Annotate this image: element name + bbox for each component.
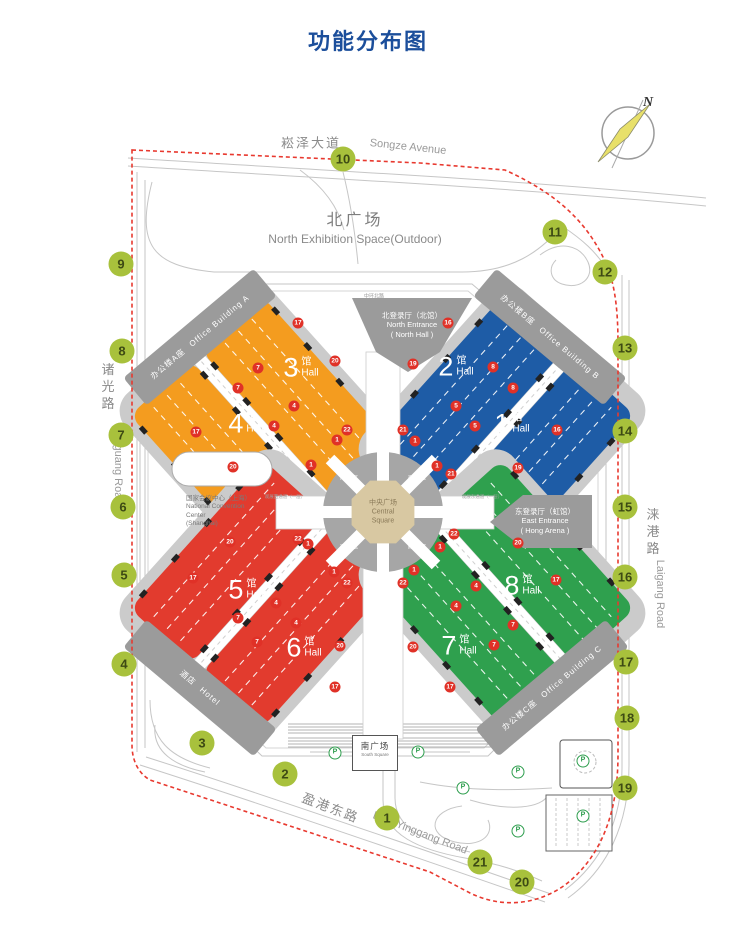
gate-marker: 20	[335, 641, 346, 652]
parking-icon: P	[457, 782, 470, 795]
boundary-marker: 14	[613, 419, 638, 444]
gate-marker: 7	[233, 613, 244, 624]
road-label-songze-cn: 崧泽大道	[281, 133, 341, 152]
parking-icon: P	[329, 747, 342, 760]
gate-marker: 1	[435, 542, 446, 553]
gate-marker: 22	[342, 578, 353, 589]
boundary-marker: 9	[109, 252, 134, 277]
hall-4-label: 4 馆Hall	[228, 411, 263, 438]
gate-marker: 17	[330, 682, 341, 693]
gate-marker: 20	[513, 538, 524, 549]
gate-marker: 1	[432, 461, 443, 472]
parking-icon: P	[512, 825, 525, 838]
gate-marker: 1	[306, 460, 317, 471]
north-plaza-label-en: North Exhibition Space(Outdoor)	[268, 232, 441, 246]
gate-marker: 19	[408, 359, 419, 370]
parking-icon: P	[512, 766, 525, 779]
gate-marker: 7	[233, 383, 244, 394]
gate-marker: 1	[303, 539, 314, 550]
boundary-marker: 11	[543, 220, 568, 245]
gate-marker: 4	[289, 401, 300, 412]
gate-marker: 20	[330, 356, 341, 367]
gate-marker: 7	[252, 637, 263, 648]
parking-icon: P	[577, 755, 590, 768]
hall-7-label: 7 馆Hall	[441, 633, 476, 660]
gate-marker: 17	[293, 318, 304, 329]
boundary-marker: 15	[613, 495, 638, 520]
gate-marker: 1	[329, 567, 340, 578]
boundary-marker: 16	[613, 565, 638, 590]
gate-marker: 21	[398, 425, 409, 436]
gate-marker: 7	[508, 620, 519, 631]
boundary-marker: 1	[375, 806, 400, 831]
gate-marker: 16	[552, 425, 563, 436]
boundary-marker: 19	[613, 776, 638, 801]
boundary-marker: 13	[613, 336, 638, 361]
gate-marker: 4	[451, 601, 462, 612]
hall-8-label: 8 馆Hall	[504, 573, 539, 600]
road-label-zhuguang-cn: 诸光路	[98, 363, 117, 414]
gate-marker: 20	[228, 462, 239, 473]
boundary-marker: 12	[593, 260, 618, 285]
boundary-marker: 2	[273, 762, 298, 787]
gate-marker: 17	[445, 682, 456, 693]
north-plaza-label-cn: 北广场	[326, 206, 383, 230]
gate-marker: 8	[488, 362, 499, 373]
road-label-laigang-en: Laigang Road	[654, 560, 666, 629]
road-label-zhonghuan-north: 中环北路	[364, 293, 384, 300]
gate-marker: 19	[513, 463, 524, 474]
gate-marker: 7	[489, 640, 500, 651]
boundary-marker: 3	[190, 731, 215, 756]
gate-marker: 1	[409, 565, 420, 576]
north-entrance-label: 北登录厅（北馆） North Entrance ( North Hall )	[382, 311, 442, 339]
plaza-area-d-label: 商业D区	[340, 544, 359, 551]
gate-marker: 1	[410, 436, 421, 447]
hall-3-label: 3 馆Hall	[283, 355, 318, 382]
corridor-label-west: 观展西通道（一层）	[265, 494, 306, 500]
gate-marker: 4	[269, 421, 280, 432]
boundary-marker: 18	[615, 706, 640, 731]
gate-marker: 16	[443, 318, 454, 329]
gate-marker: 20	[225, 537, 236, 548]
page-title: 功能分布图	[308, 24, 428, 56]
function-distribution-map: 功能分布图 N 崧泽大道 Songze Avenue 诸光路 Zhuguang …	[0, 0, 736, 944]
boundary-marker: 20	[510, 870, 535, 895]
gate-marker: 4	[271, 598, 282, 609]
gate-marker: 5	[451, 401, 462, 412]
gate-marker: 20	[408, 642, 419, 653]
gate-marker: 22	[449, 529, 460, 540]
gate-marker: 22	[342, 425, 353, 436]
convention-center-label: 国家会议中心（上海） National Convention Center (S…	[186, 495, 251, 529]
gate-marker: 8	[508, 383, 519, 394]
parking-icon: P	[577, 810, 590, 823]
gate-marker: 22	[398, 578, 409, 589]
road-label-laigang-cn: 涞港路	[643, 508, 662, 559]
parking-icon: P	[412, 746, 425, 759]
central-square-label: 中央广场 Central Square	[369, 498, 397, 525]
gate-marker: 17	[551, 575, 562, 586]
boundary-marker: 7	[109, 423, 134, 448]
boundary-marker: 8	[110, 339, 135, 364]
plaza-area-c-label: 商业C区	[408, 544, 427, 551]
east-entrance-label: 东登录厅（虹馆） East Entrance ( Hong Arena )	[515, 507, 575, 535]
corridor-label-east: 观展东通道（一层）	[462, 494, 503, 500]
gate-marker: 4	[471, 581, 482, 592]
gate-marker: 5	[470, 421, 481, 432]
boundary-marker: 10	[331, 147, 356, 172]
hall-1-label: 1 馆Hall	[494, 411, 529, 438]
gate-marker: 21	[446, 469, 457, 480]
plaza-area-b-label: 商业B区	[408, 475, 426, 482]
plaza-area-a-label: 商业A区	[340, 475, 358, 482]
gate-marker: 1	[332, 435, 343, 446]
hall-2-label: 2 馆Hall	[438, 354, 473, 381]
map-canvas	[0, 0, 736, 944]
boundary-marker: 5	[112, 563, 137, 588]
hall-5-label: 5 馆Hall	[228, 577, 263, 604]
boundary-marker: 21	[468, 850, 493, 875]
hall-6-label: 6 馆Hall	[286, 635, 321, 662]
south-square: 南广场 South Square	[352, 735, 398, 771]
boundary-marker: 17	[614, 650, 639, 675]
boundary-marker: 6	[111, 495, 136, 520]
compass-north-label: N	[643, 95, 653, 111]
boundary-marker: 4	[112, 652, 137, 677]
convention-center-building	[172, 452, 272, 486]
gate-marker: 7	[253, 363, 264, 374]
gate-marker: 4	[291, 618, 302, 629]
gate-marker: 17	[191, 427, 202, 438]
gate-marker: 17	[188, 573, 199, 584]
